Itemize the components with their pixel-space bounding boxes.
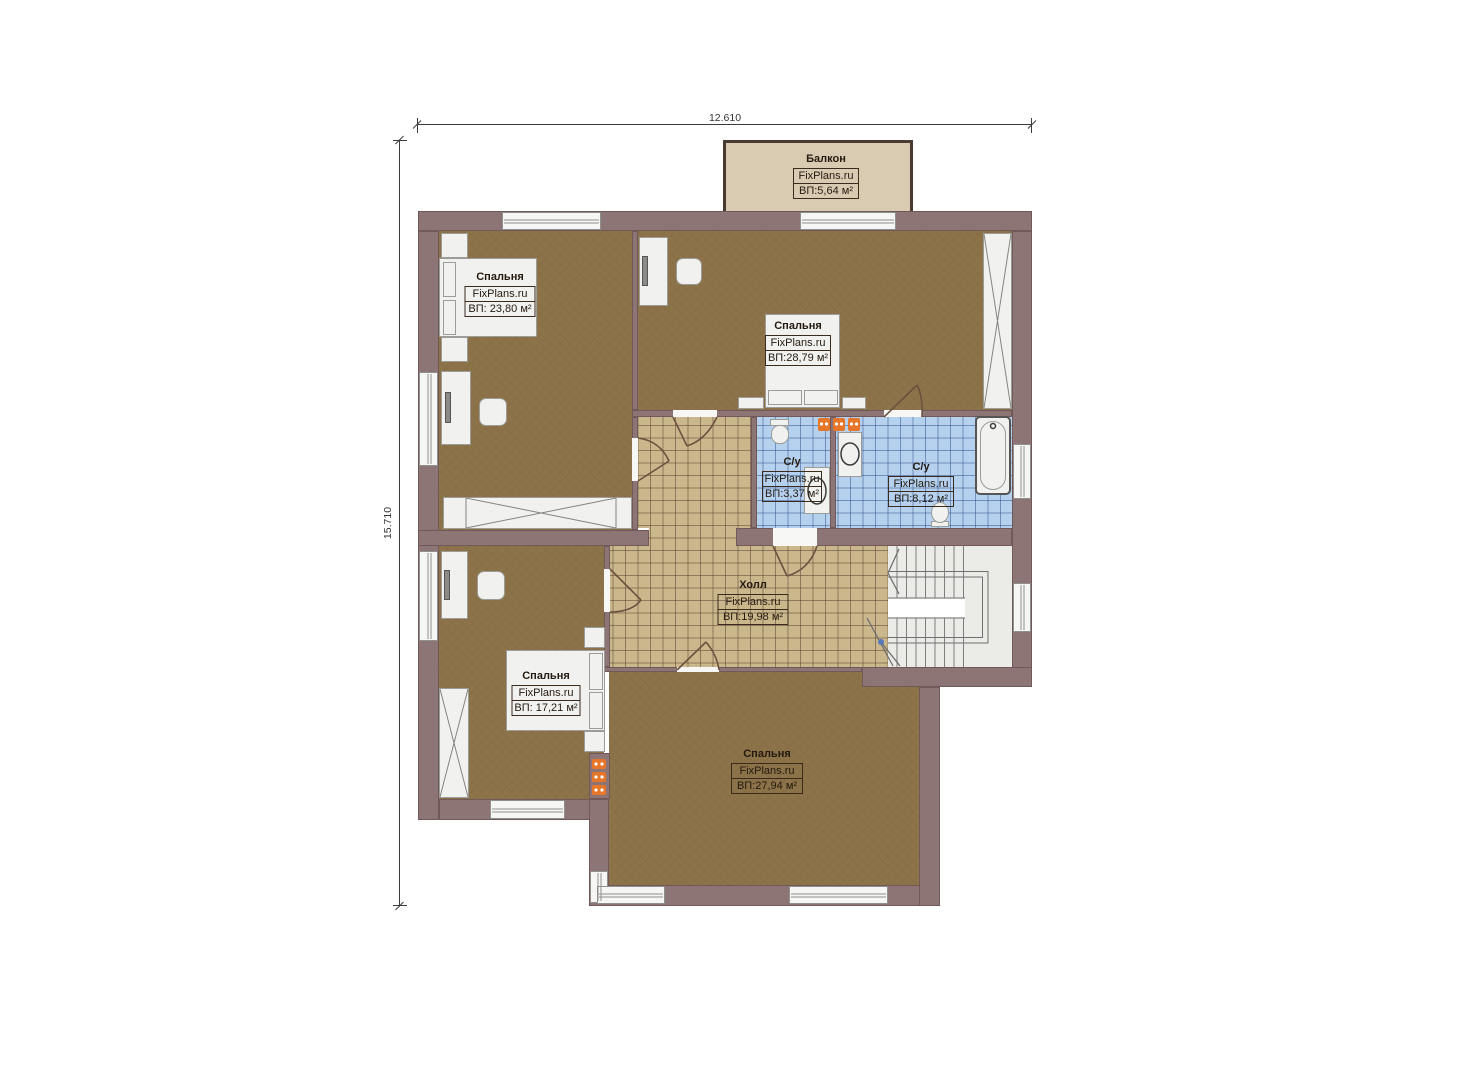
svg-text:12.610: 12.610 xyxy=(709,112,741,124)
svg-text:15.710: 15.710 xyxy=(382,507,394,539)
